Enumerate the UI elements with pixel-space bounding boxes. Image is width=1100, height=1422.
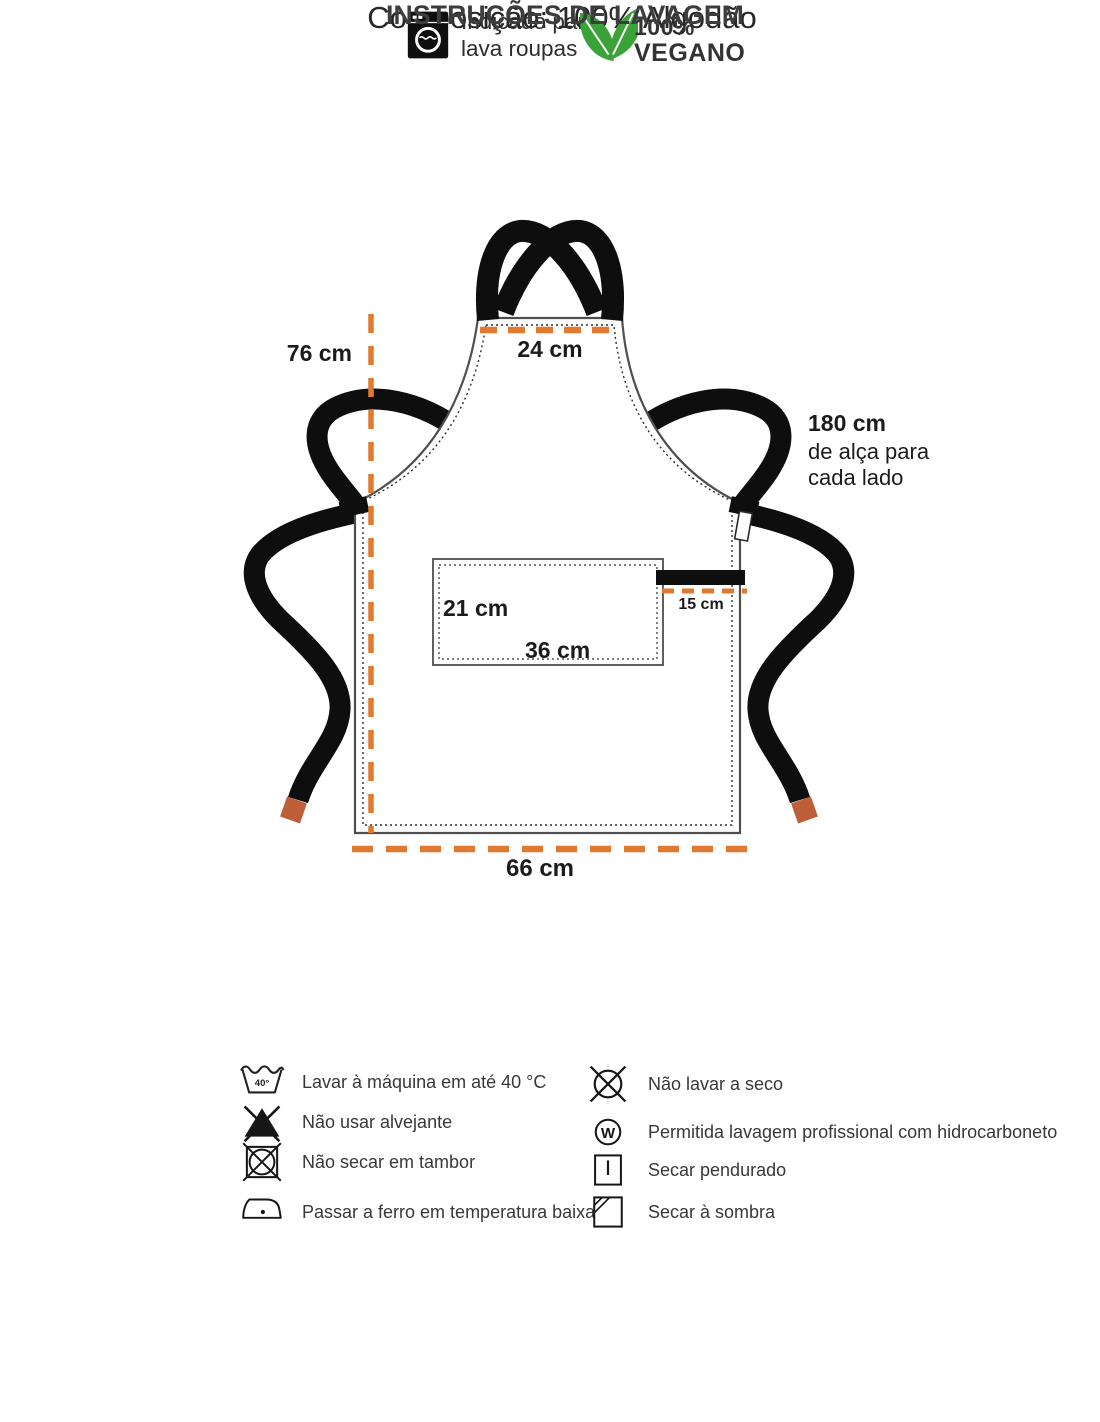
professional-hydrocarbon-icon: W (582, 1113, 634, 1151)
strap-length-label-2: de alça para (808, 439, 930, 464)
strap-length-label: 180 cm (808, 410, 886, 436)
care-item-no-dry-clean: Não lavar a seco (582, 1062, 783, 1106)
care-item-label: Secar pendurado (648, 1160, 786, 1181)
waist-strap-bar (656, 570, 745, 585)
care-item-dry-in-shade: Secar à sombra (582, 1190, 775, 1234)
no-tumble-dry-icon (236, 1140, 288, 1184)
care-instructions-title: INSTRUÇÕES DE LAVAGEM (0, 0, 1100, 31)
apron-diagram: 76 cm 24 cm 180 cm de alça para cada lad… (0, 0, 1100, 890)
no-dry-clean-icon (582, 1062, 634, 1106)
care-item-label: Secar à sombra (648, 1202, 775, 1223)
height-label: 76 cm (287, 340, 352, 366)
care-item-machine-wash-40: 40° Lavar à máquina em até 40 °C (236, 1060, 546, 1104)
hang-dry-icon (582, 1150, 634, 1190)
pocket-height-label: 21 cm (443, 595, 508, 621)
left-strap-tip (290, 800, 297, 820)
care-item-no-bleach: Não usar alvejante (236, 1100, 452, 1144)
waist-strap-label: 15 cm (678, 596, 723, 613)
svg-text:W: W (601, 1125, 616, 1142)
neck-straps (487, 231, 613, 320)
care-item-iron-low: Passar a ferro em temperatura baixa (236, 1190, 595, 1234)
right-strap-tip (801, 800, 808, 820)
pocket-width-label: 36 cm (525, 637, 590, 663)
care-item-label: Passar a ferro em temperatura baixa (302, 1202, 595, 1223)
care-item-label: Permitida lavagem profissional com hidro… (648, 1122, 1057, 1143)
care-item-hang-dry: Secar pendurado (582, 1148, 786, 1192)
dry-in-shade-icon (582, 1192, 634, 1232)
bottom-width-label: 66 cm (506, 855, 574, 882)
iron-low-temp-icon (236, 1195, 288, 1229)
care-item-label: Não usar alvejante (302, 1112, 452, 1133)
no-bleach-icon (236, 1100, 288, 1144)
wash-40-icon: 40° (236, 1062, 288, 1102)
care-item-label: Não lavar a seco (648, 1074, 783, 1095)
care-item-no-tumble-dry: Não secar em tambor (236, 1140, 475, 1184)
care-item-label: Não secar em tambor (302, 1152, 475, 1173)
strap-length-label-3: cada lado (808, 465, 903, 490)
svg-text:40°: 40° (255, 1078, 270, 1089)
neck-width-label: 24 cm (517, 336, 582, 362)
apron-size-chart: 76 cm 24 cm 180 cm de alça para cada lad… (0, 0, 1100, 1422)
care-item-label: Lavar à máquina em até 40 °C (302, 1072, 546, 1093)
